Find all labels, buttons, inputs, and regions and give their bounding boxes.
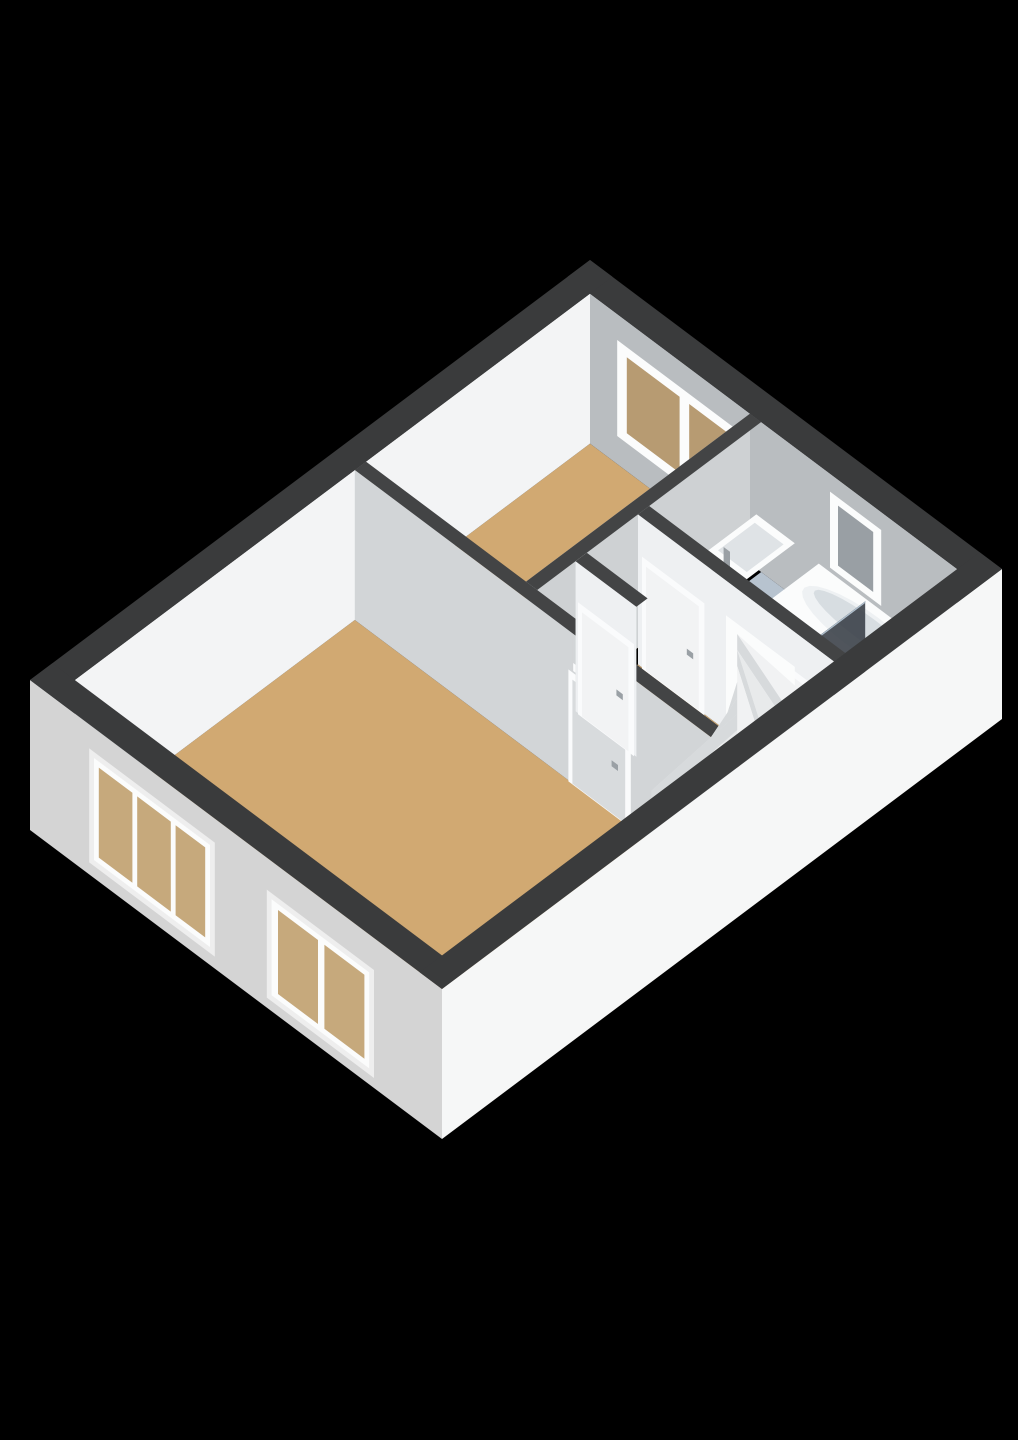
floorplan-render: [0, 0, 1018, 1440]
floorplan-3d-scene: [0, 0, 1018, 1440]
